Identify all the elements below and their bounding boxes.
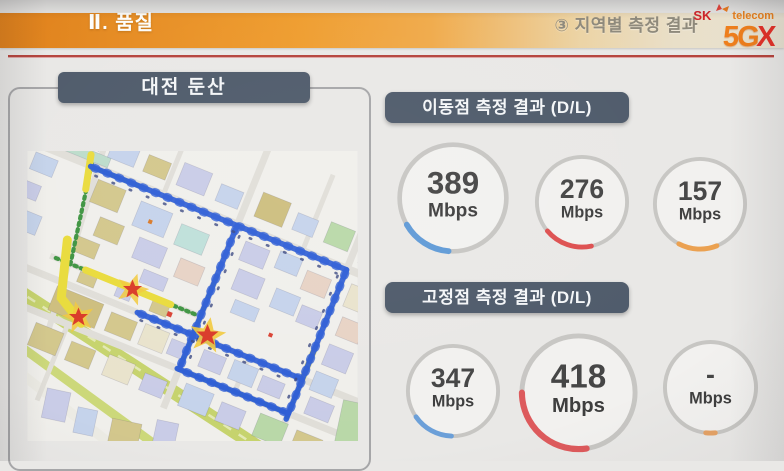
map-card-title: 대전 둔산	[58, 72, 310, 103]
svg-text:Mbps: Mbps	[689, 389, 732, 407]
gauge-mobile-2: 276 Mbps	[533, 153, 631, 251]
svg-text:389: 389	[427, 165, 479, 200]
gauge-mobile-3: 157 Mbps	[651, 155, 749, 253]
sk-telecom-5gx-logo: SK telecom 5GX	[688, 4, 774, 52]
coverage-map	[27, 151, 358, 441]
svg-text:Mbps: Mbps	[552, 395, 605, 417]
svg-text:276: 276	[560, 174, 604, 204]
butterfly-icon	[714, 4, 729, 15]
section-title-fixed: 고정점 측정 결과 (D/L)	[385, 282, 629, 313]
svg-text:157: 157	[678, 176, 722, 206]
logo-5gx-text: 5GX	[687, 23, 775, 52]
header-divider	[8, 55, 774, 57]
svg-text:347: 347	[431, 363, 475, 393]
section-title: Ⅱ. 품질	[88, 6, 154, 35]
svg-text:-: -	[706, 360, 715, 390]
gauge-fixed-2: 418 Mbps	[517, 331, 640, 454]
logo-sk-text: SK	[693, 9, 711, 22]
svg-text:Mbps: Mbps	[679, 206, 721, 224]
page-indicator: ③ 지역별 측정 결과	[554, 11, 698, 36]
svg-text:Mbps: Mbps	[428, 201, 478, 222]
svg-text:Mbps: Mbps	[432, 393, 474, 411]
section-title-mobile: 이동점 측정 결과 (D/L)	[385, 92, 629, 123]
gauge-fixed-3: - Mbps	[661, 338, 760, 437]
coverage-map-svg	[27, 151, 358, 441]
gauge-mobile-1: 389 Mbps	[395, 140, 511, 256]
gauge-fixed-1: 347 Mbps	[404, 342, 502, 440]
svg-text:418: 418	[551, 359, 606, 396]
slide: { "header": { "section_title": "Ⅱ. 품질", …	[0, 0, 784, 461]
svg-text:Mbps: Mbps	[561, 204, 603, 222]
